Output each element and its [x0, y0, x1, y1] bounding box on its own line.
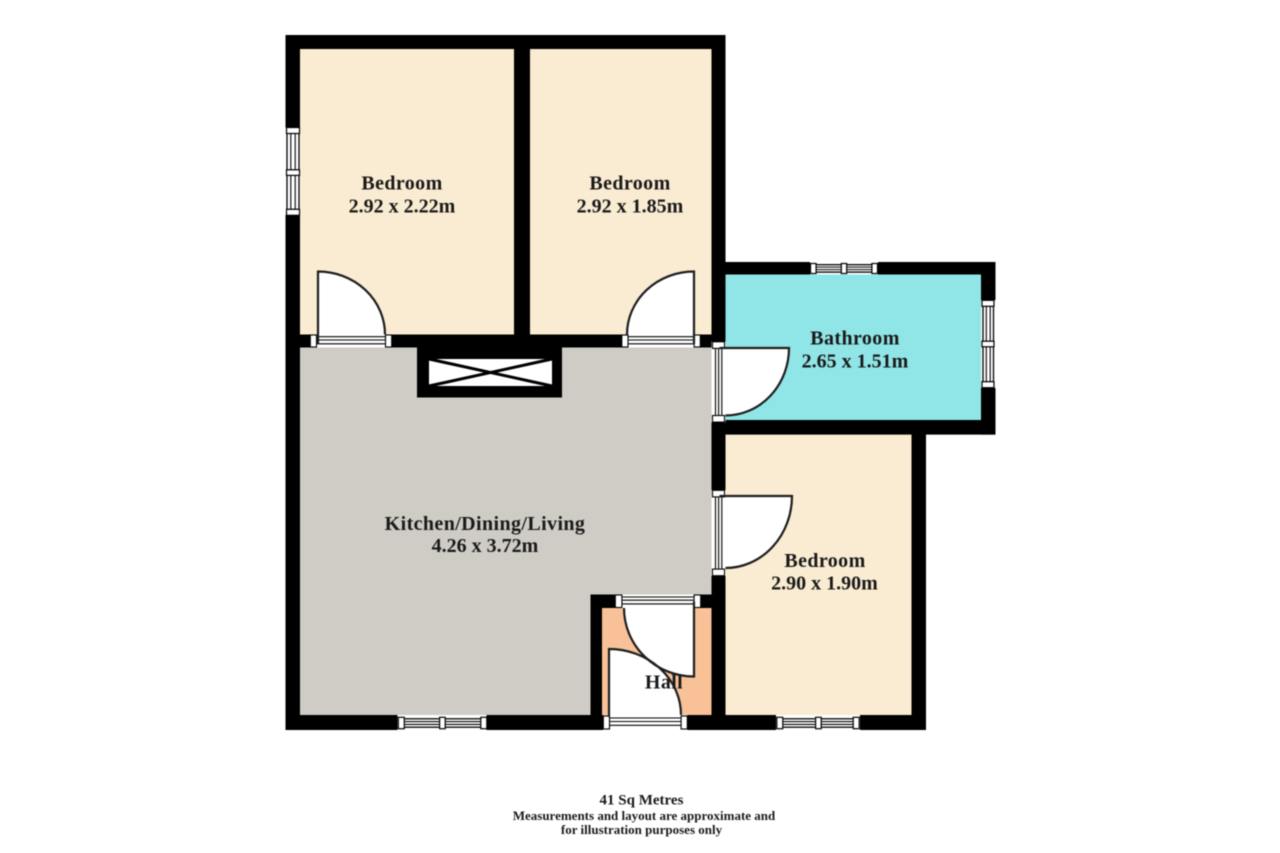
- svg-text:2.92 x 1.85m: 2.92 x 1.85m: [577, 196, 684, 218]
- svg-text:Measurements and layout are ap: Measurements and layout are approximate …: [513, 808, 776, 823]
- svg-text:41 Sq Metres: 41 Sq Metres: [600, 793, 684, 809]
- svg-text:Kitchen/Dining/Living: Kitchen/Dining/Living: [385, 513, 586, 535]
- svg-text:Bedroom: Bedroom: [784, 550, 865, 572]
- svg-text:Bedroom: Bedroom: [361, 173, 442, 195]
- svg-text:2.65 x 1.51m: 2.65 x 1.51m: [802, 351, 909, 373]
- svg-text:Hall: Hall: [645, 672, 683, 694]
- svg-text:Bedroom: Bedroom: [589, 173, 670, 195]
- svg-text:4.26 x 3.72m: 4.26 x 3.72m: [432, 535, 539, 557]
- svg-text:2.90 x 1.90m: 2.90 x 1.90m: [771, 573, 878, 595]
- svg-text:Bathroom: Bathroom: [810, 328, 900, 350]
- svg-text:2.92 x 2.22m: 2.92 x 2.22m: [349, 196, 456, 218]
- svg-text:for illustration purposes only: for illustration purposes only: [561, 822, 723, 837]
